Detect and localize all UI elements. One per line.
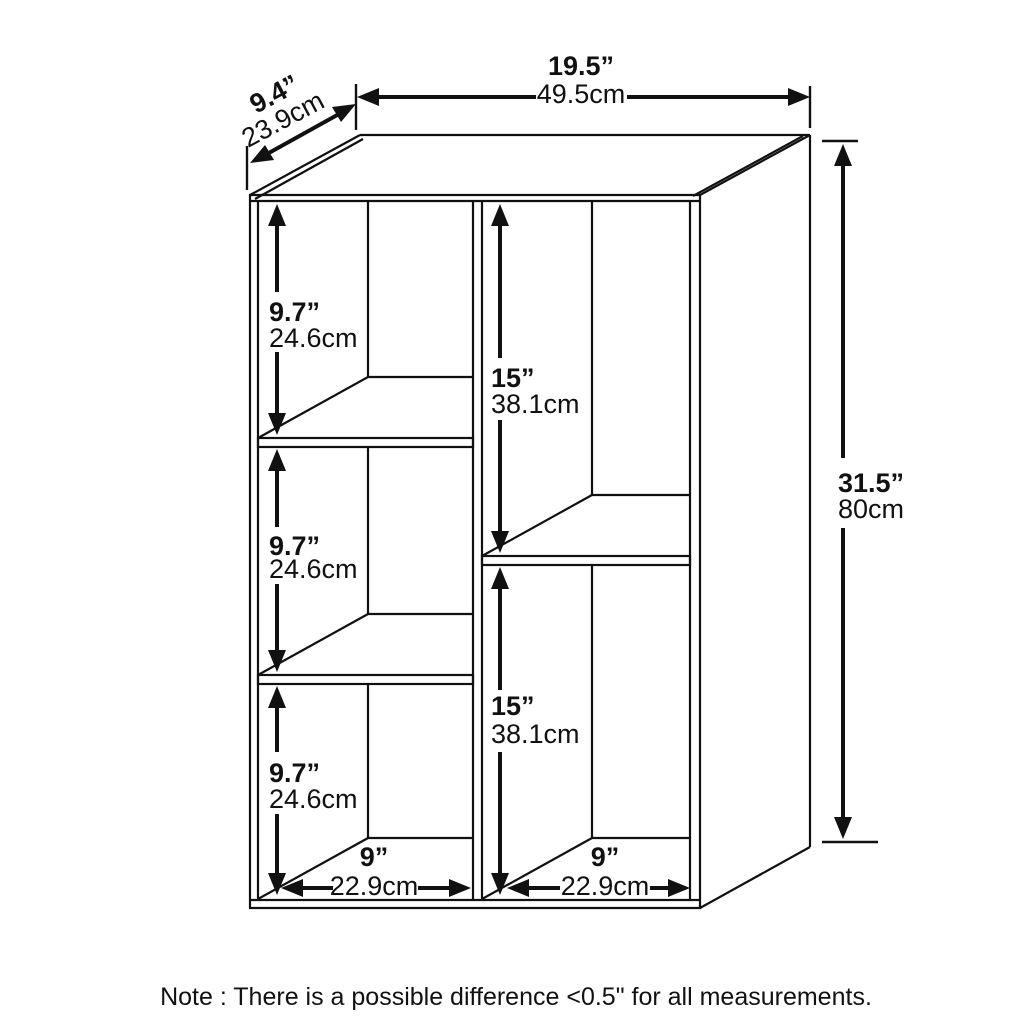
top-right-edge-outer xyxy=(700,135,810,195)
left-compartment-width-cm: 22.9cm xyxy=(330,871,419,901)
dim-right-compartment-2: 15” 38.1cm xyxy=(491,567,580,895)
bookcase-dimension-diagram: 19.5” 49.5cm 9.4” 23.9cm 31.5” 80cm 9.7”… xyxy=(0,0,1024,1024)
overall-width-inches: 19.5” xyxy=(548,51,614,81)
note-text: Note : There is a possible difference <0… xyxy=(160,983,872,1011)
dim-left-compartment-3: 9.7” 24.6cm xyxy=(268,686,358,895)
right-shelf xyxy=(482,556,690,565)
arrowhead-left xyxy=(357,88,379,106)
overall-width-cm: 49.5cm xyxy=(537,79,626,109)
left-shelf-1 xyxy=(258,438,473,447)
right-side-panel-3d xyxy=(700,135,810,908)
dim-right-compartment-1: 15” 38.1cm xyxy=(491,204,580,553)
dim-overall-depth: 9.4” 23.9cm xyxy=(237,69,356,190)
left-shelf-2 xyxy=(258,675,473,684)
arrowhead-left xyxy=(281,879,303,897)
right-compartment-1-cm: 38.1cm xyxy=(491,389,580,419)
left-compartment-1-cm: 24.6cm xyxy=(269,323,358,353)
arrowhead-up xyxy=(268,449,286,471)
top-right-edge-inner xyxy=(693,136,803,196)
arrowhead-right xyxy=(449,879,471,897)
side-bottom-edge xyxy=(700,847,810,908)
left-compartment-3-cm: 24.6cm xyxy=(269,784,358,814)
arrowhead-left xyxy=(507,879,529,897)
right-compartment-2-inches: 15” xyxy=(491,691,535,721)
right-compartment-width-cm: 22.9cm xyxy=(561,871,650,901)
dim-right-compartment-width: 9” 22.9cm xyxy=(507,842,690,901)
diagram-canvas: 19.5” 49.5cm 9.4” 23.9cm 31.5” 80cm 9.7”… xyxy=(0,0,1024,1024)
arrowhead-up xyxy=(491,204,509,226)
dim-left-compartment-2: 9.7” 24.6cm xyxy=(268,449,358,672)
top-left-edge-inner xyxy=(255,139,363,199)
arrowhead-up xyxy=(268,686,286,708)
arrowhead-up xyxy=(834,144,852,166)
left-compartment-width-inches: 9” xyxy=(360,842,389,872)
arrowhead-upper-right xyxy=(332,104,356,122)
arrowhead-up xyxy=(491,567,509,589)
dim-overall-width: 19.5” 49.5cm xyxy=(356,51,810,130)
arrowhead-down xyxy=(834,817,852,839)
arrowhead-right xyxy=(788,88,810,106)
top-panel-3d xyxy=(250,135,810,199)
right-compartment-2-cm: 38.1cm xyxy=(491,719,580,749)
arrowhead-up xyxy=(268,204,286,226)
dim-left-compartment-1: 9.7” 24.6cm xyxy=(268,204,358,435)
center-divider xyxy=(473,201,482,900)
overall-height-cm: 80cm xyxy=(838,494,904,524)
right-compartment-width-inches: 9” xyxy=(591,842,620,872)
left-compartment-2-cm: 24.6cm xyxy=(269,554,358,584)
arrowhead-right xyxy=(668,879,690,897)
dim-overall-height: 31.5” 80cm xyxy=(822,141,904,842)
